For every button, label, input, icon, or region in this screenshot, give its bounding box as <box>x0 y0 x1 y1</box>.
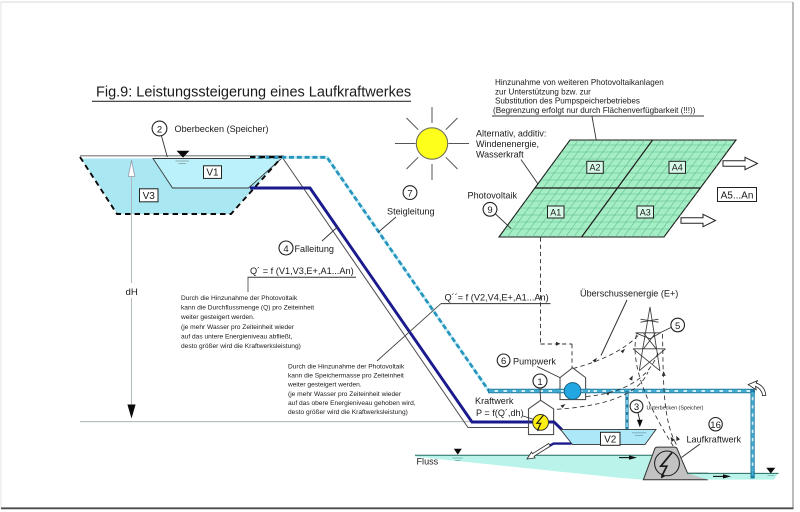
svg-text:5: 5 <box>675 321 680 332</box>
svg-text:weiter gesteigert werden.: weiter gesteigert werden. <box>287 382 362 389</box>
svg-text:Windenenergie,: Windenenergie, <box>476 139 539 149</box>
svg-text:Oberbecken (Speicher): Oberbecken (Speicher) <box>175 124 269 134</box>
svg-text:Photovoltaik: Photovoltaik <box>468 190 518 200</box>
svg-text:kann die Speichermasse pro Zei: kann die Speichermasse pro Zeiteinheit <box>288 373 404 380</box>
svg-text:3: 3 <box>634 402 639 413</box>
svg-text:V2: V2 <box>604 434 617 445</box>
svg-text:A5...An: A5...An <box>721 190 754 201</box>
svg-text:V1: V1 <box>206 168 219 179</box>
svg-text:Falleitung: Falleitung <box>295 244 334 254</box>
svg-text:V3: V3 <box>143 191 156 202</box>
svg-text:auf das untere Energieniveau a: auf das untere Energieniveau abfließt, <box>181 333 293 340</box>
svg-text:Fig.9: Leistungssteigerung ein: Fig.9: Leistungssteigerung eines Laufkra… <box>96 85 411 101</box>
svg-text:desto größer wird die Kraftwer: desto größer wird die Kraftwerksleistung… <box>288 409 408 416</box>
svg-text:Kraftwerk: Kraftwerk <box>475 396 514 406</box>
svg-text:Laufkraftwerk: Laufkraftwerk <box>687 434 742 444</box>
svg-text:4: 4 <box>283 244 288 255</box>
svg-text:Pumpwerk: Pumpwerk <box>513 357 556 367</box>
svg-text:Fluss: Fluss <box>417 456 439 466</box>
svg-text:2: 2 <box>157 124 162 135</box>
svg-text:A3: A3 <box>640 207 651 217</box>
svg-text:zur Unterstützung bzw. zur: zur Unterstützung bzw. zur <box>495 87 591 96</box>
svg-text:Hinzunahme von weiteren Photov: Hinzunahme von weiteren Photovoltaikanla… <box>495 78 664 87</box>
svg-text:(Begrenzung erfolgt nur durch: (Begrenzung erfolgt nur durch Flächenver… <box>493 106 696 115</box>
svg-text:(je mehr Wasser pro Zeiteinhei: (je mehr Wasser pro Zeiteinheit wieder <box>181 324 295 331</box>
svg-text:7: 7 <box>407 188 412 199</box>
svg-text:9: 9 <box>487 205 492 216</box>
svg-text:Q´´= f (V2,V4,E+,A1...An): Q´´= f (V2,V4,E+,A1...An) <box>445 293 549 303</box>
svg-text:A2: A2 <box>589 163 600 173</box>
svg-text:Durch die Hinzunahme der Photo: Durch die Hinzunahme der Photovoltaik <box>181 295 298 302</box>
svg-text:P = f(Q´,dh): P = f(Q´,dh) <box>476 408 524 418</box>
svg-text:1: 1 <box>537 377 542 388</box>
svg-text:6: 6 <box>501 356 506 367</box>
svg-text:weiter gesteigert werden.: weiter gesteigert werden. <box>180 314 255 321</box>
svg-text:A1: A1 <box>550 207 561 217</box>
svg-text:Unterbecken (Speicher): Unterbecken (Speicher) <box>647 406 704 412</box>
svg-text:desto größer wird die Kraftwer: desto größer wird die Kraftwerksleistung… <box>181 343 301 350</box>
svg-text:Steigleitung: Steigleitung <box>387 206 435 216</box>
svg-text:Substitution des Pumpspeicherb: Substitution des Pumpspeicherbetriebes <box>495 97 640 106</box>
svg-text:(je mehr Wasser pro Zeiteinhei: (je mehr Wasser pro Zeiteinheit wieder <box>288 391 402 398</box>
svg-text:Durch die Hinzunahme der Photo: Durch die Hinzunahme der Photovoltaik <box>288 364 405 371</box>
svg-text:kann die Durchflussmenge (Q) p: kann die Durchflussmenge (Q) pro Zeitein… <box>181 305 314 312</box>
svg-text:Wasserkraft: Wasserkraft <box>476 149 524 159</box>
svg-text:Überschussenergie (E+): Überschussenergie (E+) <box>580 289 678 299</box>
svg-text:16: 16 <box>710 420 721 431</box>
svg-text:dH: dH <box>126 287 138 298</box>
svg-text:A4: A4 <box>672 163 683 173</box>
svg-text:auf das obere Energieniveau ge: auf das obere Energieniveau gehoben wird… <box>288 400 416 407</box>
svg-text:Alternativ, additiv:: Alternativ, additiv: <box>476 129 546 139</box>
svg-text:Q´ = f (V1,V3,E+,A1...An): Q´ = f (V1,V3,E+,A1...An) <box>250 266 354 276</box>
